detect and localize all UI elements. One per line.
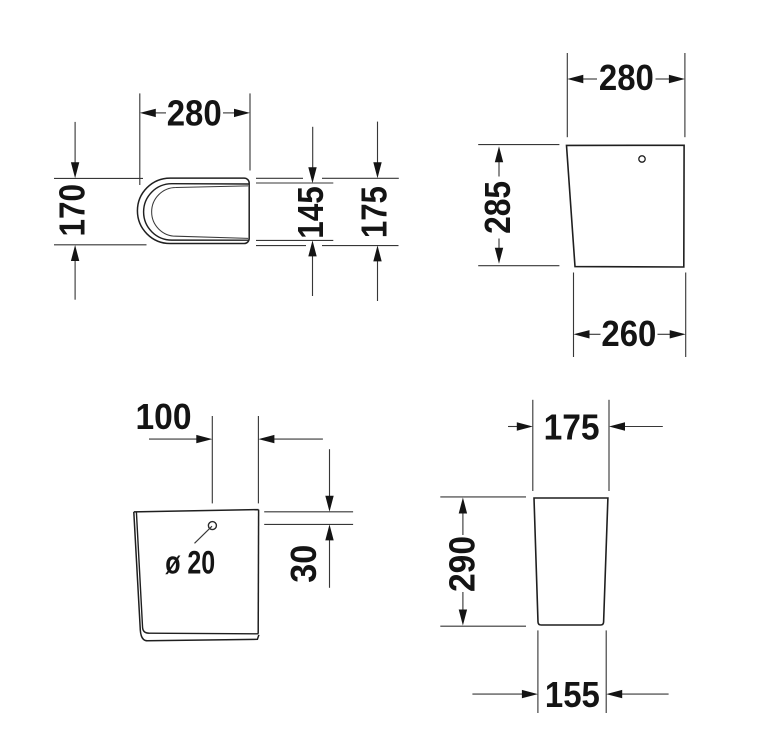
svg-text:280: 280	[599, 57, 654, 98]
svg-text:30: 30	[283, 545, 324, 583]
svg-text:170: 170	[51, 184, 92, 237]
svg-text:290: 290	[442, 536, 483, 592]
svg-text:260: 260	[601, 313, 656, 354]
svg-text:155: 155	[545, 674, 600, 715]
svg-text:280: 280	[167, 92, 222, 133]
svg-text:ø 20: ø 20	[165, 545, 215, 581]
svg-text:285: 285	[477, 181, 518, 234]
svg-text:145: 145	[290, 186, 331, 239]
svg-text:100: 100	[136, 396, 192, 437]
svg-text:175: 175	[354, 186, 395, 238]
svg-text:175: 175	[544, 407, 600, 448]
